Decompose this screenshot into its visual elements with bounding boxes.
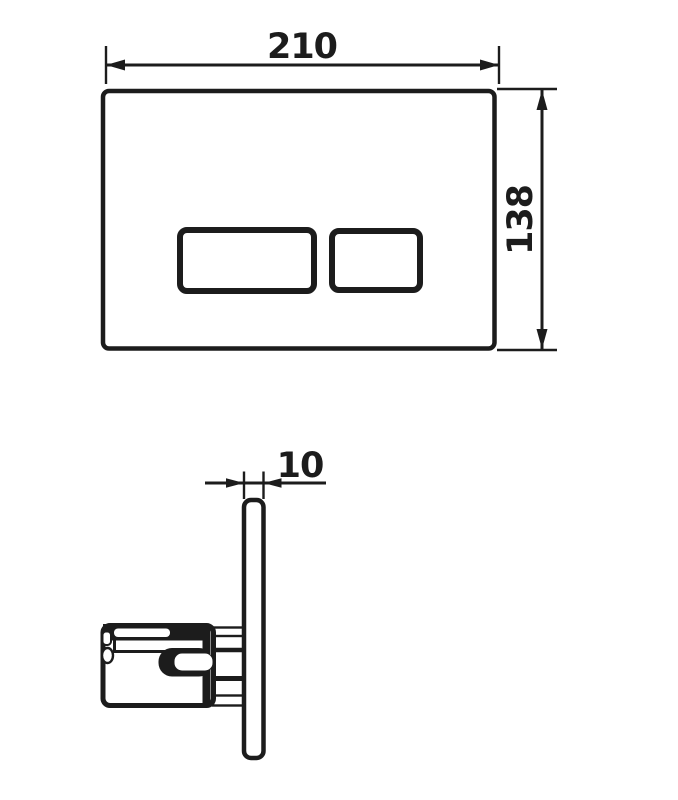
front-view (103, 91, 495, 349)
mechanism-left-pivot (102, 648, 113, 663)
mounting-flange-bottom (213, 696, 246, 706)
drawing-svg: 210 138 (0, 0, 678, 800)
width-dimension-label: 210 (267, 27, 337, 67)
mechanism-top-slot (114, 629, 170, 638)
mechanism-piston-inner (175, 654, 213, 671)
height-dimension: 138 (497, 89, 557, 350)
width-arrow-right (480, 60, 499, 71)
height-arrow-top (537, 90, 548, 110)
mounting-flange-top (213, 628, 246, 637)
flush-plate-technical-drawing: 210 138 (0, 0, 678, 800)
plate-outline (103, 91, 495, 349)
side-view (102, 500, 264, 758)
thickness-arrow-left (226, 478, 244, 488)
height-arrow-bottom (537, 329, 548, 349)
mounting-mechanism (102, 624, 214, 706)
width-dimension: 210 (106, 27, 499, 84)
thickness-dimension: 10 (205, 446, 326, 499)
height-dimension-label: 138 (501, 185, 541, 255)
side-plate-profile (244, 500, 264, 758)
large-flush-button (180, 230, 314, 291)
thickness-dimension-label: 10 (277, 446, 324, 486)
width-arrow-left (106, 60, 125, 71)
mechanism-left-notch (103, 632, 112, 646)
small-flush-button (332, 231, 420, 290)
